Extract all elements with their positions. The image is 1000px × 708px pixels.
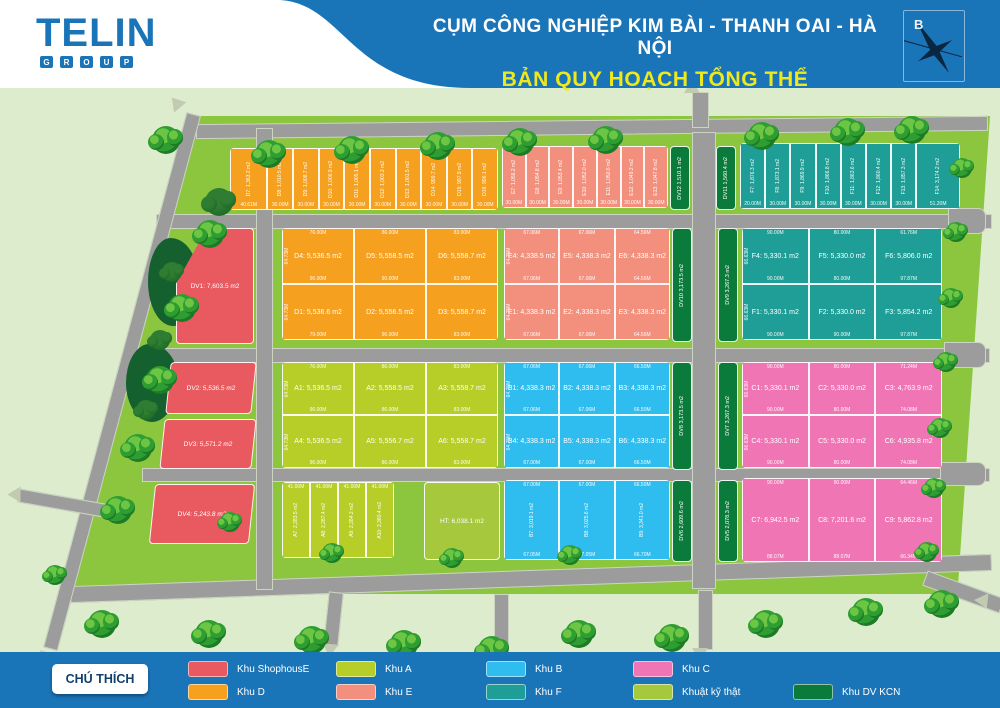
dimension-label: 67.06M: [505, 364, 558, 370]
tree-icon: [196, 220, 224, 248]
legend-label: Khu E: [385, 687, 412, 698]
road-arrow: [8, 487, 21, 503]
header-bar: TELIN GROUP CỤM CÔNG NGHIỆP KIM BÀI - TH…: [0, 0, 1000, 88]
plot-b6: B6: 4,338.3 m266.50M: [615, 415, 670, 468]
plot-a4: A4: 5,536.5 m296.00M64.73M: [282, 415, 354, 468]
tree-icon: [136, 400, 156, 420]
dimension-label: 30.00M: [766, 201, 789, 207]
dimension-label: 30.00M: [598, 200, 620, 206]
road-arrow: [166, 92, 187, 112]
plot-d9: D9: 1,008.7 m230.00M: [293, 148, 319, 210]
plot-d15: D15: 997.9 m230.00M: [447, 148, 473, 210]
dimension-label: 90.00M: [743, 364, 808, 370]
dimension-label: 97.87M: [876, 332, 941, 338]
dimension-label: 83.00M: [427, 407, 497, 413]
plot-label: C5: 5,330.0 m2: [818, 438, 866, 445]
legend-label: Khu F: [535, 687, 562, 698]
legend-item-khu-e: Khu E: [336, 683, 486, 701]
plot-a10: 41.00MA10: 2,380.4 m2: [366, 482, 394, 558]
dimension-label: 66.50M: [616, 482, 669, 488]
plot-d4: 76.00MD4: 5,536.5 m296.00M64.73M: [282, 228, 354, 284]
legend-label: Khu DV KCN: [842, 687, 900, 698]
dimension-label: 83.00M: [427, 276, 497, 282]
plot-b3: 66.50MB3: 4,338.3 m266.50M: [615, 362, 670, 415]
plot-c5: C5: 5,330.0 m280.00M: [809, 415, 876, 468]
plot-a3: 83.00MA3: 5,558.7 m283.00M: [426, 362, 498, 415]
legend-swatch: [793, 684, 833, 700]
tree-icon: [255, 140, 283, 168]
plot-label: E12: 1,049.2 m2: [629, 159, 635, 196]
plot-f2: F2: 5,330.0 m290.00M: [809, 284, 876, 340]
dimension-label: 66.50M: [616, 460, 669, 466]
tree-icon: [45, 565, 65, 585]
plot-label: B7: 3,019.1 m2: [529, 503, 535, 537]
plot-e1: E1: 4,338.3 m267.06M64.75M: [504, 284, 559, 340]
plot-label: A3: 5,558.7 m2: [438, 385, 485, 392]
plot-label: B5: 4,338.3 m2: [563, 438, 610, 445]
legend-swatch: [336, 661, 376, 677]
road-deadend-east3: [940, 462, 986, 486]
plot-e13: E13: 1,047.8 m230.00M: [644, 146, 668, 208]
dimension-label: 64.73M: [284, 304, 290, 321]
plot-label: B1: 4,338.3 m2: [508, 385, 555, 392]
plot-label: HT: 6,038.1 m2: [440, 518, 484, 525]
dimension-label: 66.63M: [744, 304, 750, 321]
logo-subtext: GROUP: [40, 56, 157, 68]
dimension-label: 30.00M: [892, 201, 915, 207]
road-row2: [156, 214, 992, 229]
dimension-label: 64.73M: [284, 248, 290, 265]
legend-label: Khuật kỹ thật: [682, 687, 740, 698]
plot-label: B4: 4,338.3 m2: [508, 438, 555, 445]
legend-row-2: Khu DKhu EKhu FKhuật kỹ thậtKhu DV KCN: [188, 683, 953, 701]
tree-icon: [506, 128, 534, 156]
dimension-label: 30.00M: [550, 200, 572, 206]
plot-label: C9: 5,862.8 m2: [885, 517, 933, 524]
tree-icon: [168, 294, 196, 322]
plot-d12: D12: 1,003.3 m230.00M: [370, 148, 396, 210]
tree-icon: [936, 352, 956, 372]
plot-label: DV8 3,173.5 m2: [679, 396, 685, 436]
plot-label: F9: 1,869.9 m2: [800, 159, 806, 193]
dimension-label: 76.00M: [283, 230, 353, 236]
title-line1: CỤM CÔNG NGHIỆP KIM BÀI - THANH OAI - HÀ…: [430, 16, 880, 60]
master-plan-poster: D7: 1,363.2 m240.61MD8: 1,010.5 m230.00M…: [0, 0, 1000, 708]
block-khu-a: 76.00MA1: 5,536.5 m296.00M64.73M86.00MA2…: [282, 362, 498, 468]
plot-label: DV5 2,078.3 m2: [725, 501, 731, 541]
tree-icon: [146, 366, 174, 394]
plot-label: A1: 5,536.5 m2: [294, 385, 341, 392]
plot-label: E1: 4,338.3 m2: [508, 309, 555, 316]
plot-label: DV9 3,267.3 m2: [725, 265, 731, 305]
dimension-label: 30.00M: [422, 202, 446, 208]
block-khu-e-north: E7: 1,056.2 m230.00ME8: 1,054.8 m230.00M…: [502, 146, 668, 208]
dimension-label: 67.06M: [560, 407, 613, 413]
plot-c4: C4: 5,330.1 m290.00M66.63M: [742, 415, 809, 468]
plot-label: DV7 3,267.3 m2: [725, 396, 731, 436]
plot-label: F13: 1,857.3 m2: [901, 158, 907, 194]
legend-swatch: [486, 661, 526, 677]
dimension-label: 66.50M: [616, 407, 669, 413]
plot-b2: 67.06MB2: 4,338.3 m267.06M: [559, 362, 614, 415]
road-row3: [148, 348, 990, 363]
plot-label: D2: 5,556.5 m2: [366, 309, 414, 316]
dimension-label: 74.08M: [876, 407, 941, 413]
plot-label: A8: 2,287.4 m2: [321, 503, 327, 537]
plot-label: C8: 7,201.6 m2: [818, 517, 866, 524]
plot-label: D1: 5,536.6 m2: [294, 309, 342, 316]
dimension-label: 90.00M: [355, 276, 425, 282]
plot-label: F4: 5,330.1 m2: [752, 253, 799, 260]
plot-label: D8: 1,010.5 m2: [277, 162, 283, 196]
plot-label: F2: 5,330.0 m2: [818, 309, 865, 316]
plot-label: F10: 1,866.8 m2: [825, 158, 831, 194]
dimension-label: 97.87M: [876, 276, 941, 282]
dimension-label: 90.00M: [810, 480, 875, 486]
legend-label: Khu C: [682, 664, 710, 675]
plot-dv2: DV2: 5,536.5 m2: [165, 362, 256, 414]
plot-f9: F9: 1,869.9 m230.00M: [790, 143, 815, 209]
plot-f1: F1: 5,330.1 m290.00M66.63M: [742, 284, 809, 340]
dimension-label: 83.00M: [427, 332, 497, 338]
legend-swatch: [486, 684, 526, 700]
plot-e6: 64.56ME6: 4,338.3 m264.56M: [615, 228, 670, 284]
plot-label: E3: 4,338.3 m2: [619, 309, 666, 316]
plot-e11: E11: 1,050.6 m230.00M: [597, 146, 621, 208]
plot-label: DV1: 7,603.5 m2: [191, 283, 240, 290]
title-line2: BẢN QUY HOẠCH TỔNG THỂ: [430, 68, 880, 92]
dimension-label: 64.75M: [506, 304, 512, 321]
plot-label: B8: 3,025.6 m2: [584, 503, 590, 537]
tree-icon: [928, 590, 956, 618]
plot-label: DV2: 5,536.5 m2: [186, 385, 236, 392]
plot-label: A7: 2,283.5 m2: [293, 503, 299, 537]
plot-f3: F3: 5,854.2 m297.87M: [875, 284, 942, 340]
poster-titles: CỤM CÔNG NGHIỆP KIM BÀI - THANH OAI - HÀ…: [430, 16, 880, 92]
legend-item-shophouse: Khu ShophousE: [188, 660, 336, 678]
dimension-label: 90.00M: [743, 407, 808, 413]
logo-sub-letter: P: [120, 56, 133, 68]
dimension-label: 66.63M: [744, 248, 750, 265]
plot-d16: D16: 996.1 m230.00M: [472, 148, 498, 210]
dimension-label: 30.00M: [345, 202, 369, 208]
plot-label: F3: 5,854.2 m2: [885, 309, 932, 316]
plot-dv5: DV5 2,078.3 m2: [718, 480, 738, 562]
dimension-label: 30.00M: [574, 200, 596, 206]
tree-icon: [442, 548, 462, 568]
legend-item-dv-kcn: Khu DV KCN: [793, 683, 953, 701]
dimension-label: 64.56M: [616, 276, 669, 282]
dimension-label: 79.00M: [283, 332, 353, 338]
plot-label: E8: 1,054.8 m2: [535, 160, 541, 194]
dimension-label: 88.07M: [743, 554, 808, 560]
plot-label: D14: 999.7 m2: [431, 163, 437, 196]
plot-label: C2: 5,330.0 m2: [818, 385, 866, 392]
legend-row-1: Khu ShophousEKhu AKhu BKhu C: [188, 660, 953, 678]
tree-icon: [930, 418, 950, 438]
tree-icon: [88, 610, 116, 638]
dimension-label: 30.00M: [473, 202, 497, 208]
dimension-label: 30.00M: [622, 200, 644, 206]
dimension-label: 66.70M: [616, 552, 669, 558]
plot-c1: 90.00MC1: 5,330.1 m290.00M66.63M: [742, 362, 809, 415]
logo-text: TELIN: [36, 12, 157, 54]
plot-e8: E8: 1,054.8 m230.00M: [526, 146, 550, 208]
legend-label: Khu D: [237, 687, 265, 698]
block-khu-d: 76.00MD4: 5,536.5 m296.00M64.73M86.00MD5…: [282, 228, 498, 340]
dimension-label: 64.75M: [506, 248, 512, 265]
plot-f5: 80.00MF5: 5,330.0 m280.00M: [809, 228, 876, 284]
plot-label: D9: 1,008.7 m2: [303, 162, 309, 196]
dimension-label: 67.06M: [560, 276, 613, 282]
dimension-label: 51.20M: [917, 201, 959, 207]
plot-e9: E9: 1,053.4 m230.00M: [549, 146, 573, 208]
plot-label: F12: 1,860.4 m2: [876, 158, 882, 194]
plot-e4: 67.06ME4: 4,338.5 m267.06M64.75M: [504, 228, 559, 284]
tree-icon: [924, 478, 944, 498]
plot-label: D16: 996.1 m2: [482, 163, 488, 196]
tree-icon: [834, 118, 862, 146]
plot-dv8: DV8 3,173.5 m2: [672, 362, 692, 470]
dimension-label: 67.06M: [505, 407, 558, 413]
dimension-label: 96.00M: [283, 276, 353, 282]
map-canvas: D7: 1,363.2 m240.61MD8: 1,010.5 m230.00M…: [0, 0, 1000, 708]
block-khu-e: 67.06ME4: 4,338.5 m267.06M64.75M67.06ME5…: [504, 228, 670, 340]
plot-label: B2: 4,338.3 m2: [563, 385, 610, 392]
plot-b9: 66.50MB9: 3,341.0 m266.70M: [615, 480, 670, 560]
plot-dv10: DV10 3,173.5 m2: [672, 228, 692, 342]
dimension-label: 30.00M: [645, 200, 667, 206]
plot-e2: E2: 4,338.3 m267.06M: [559, 284, 614, 340]
dimension-label: 40.61M: [231, 202, 266, 208]
dimension-label: 90.00M: [743, 332, 808, 338]
legend-label: Khu A: [385, 664, 412, 675]
plot-e3: E3: 4,338.3 m264.56M: [615, 284, 670, 340]
tree-icon: [748, 122, 776, 150]
legend-swatch: [188, 661, 228, 677]
plot-dv7: DV7 3,267.3 m2: [718, 362, 738, 470]
tree-icon: [162, 262, 182, 282]
plot-label: E4: 4,338.5 m2: [508, 253, 555, 260]
road-vertical-east: [692, 132, 716, 589]
tree-icon: [150, 330, 170, 350]
dimension-label: 90.00M: [810, 332, 875, 338]
legend-label: Khu B: [535, 664, 562, 675]
dimension-label: 96.00M: [355, 332, 425, 338]
telin-logo: TELIN GROUP: [36, 12, 157, 68]
tree-icon: [952, 158, 972, 178]
dimension-label: 30.00M: [867, 201, 890, 207]
dimension-label: 41.00M: [311, 484, 337, 490]
legend-title: CHÚ THÍCH: [52, 664, 148, 694]
dimension-label: 41.00M: [283, 484, 309, 490]
plot-label: F5: 5,330.0 m2: [818, 253, 865, 260]
dimension-label: 80.00M: [810, 276, 875, 282]
plot-label: A6: 5,558.7 m2: [438, 438, 485, 445]
plot-label: A4: 5,536.5 m2: [294, 438, 341, 445]
plot-label: F11: 1,863.6 m2: [850, 158, 856, 194]
dimension-label: 86.00M: [355, 230, 425, 236]
plot-label: F1: 5,330.1 m2: [752, 309, 799, 316]
dimension-label: 90.00M: [743, 480, 808, 486]
plot-f7: F7: 1,876.3 m220.00M: [740, 143, 765, 209]
plot-dv9: DV9 3,267.3 m2: [718, 228, 738, 342]
dimension-label: 67.06M: [505, 276, 558, 282]
dimension-label: 80.00M: [810, 460, 875, 466]
block-khu-c: 90.00MC1: 5,330.1 m290.00M66.63M80.00MC2…: [742, 362, 942, 468]
dimension-label: 67.00M: [505, 460, 558, 466]
plot-label: E11: 1,050.6 m2: [606, 159, 612, 195]
plot-label: D3: 5,558.7 m2: [438, 309, 486, 316]
logo-sub-letter: U: [100, 56, 113, 68]
plot-label: C7: 6,942.5 m2: [751, 517, 799, 524]
plot-d3: D3: 5,558.7 m283.00M: [426, 284, 498, 340]
plot-label: F14: 3,174.2 m2: [935, 158, 941, 194]
plot-label: A10: 2,380.4 m2: [377, 502, 383, 539]
dimension-label: 30.00M: [817, 201, 840, 207]
block-khu-c-south: 90.00MC7: 6,942.5 m288.07M90.00MC8: 7,20…: [742, 478, 942, 562]
tree-icon: [338, 136, 366, 164]
road-top-stub: [692, 92, 709, 128]
plot-label: D7: 1,363.2 m2: [246, 162, 252, 196]
dimension-label: 67.06M: [560, 332, 613, 338]
legend-item-khu-f: Khu F: [486, 683, 633, 701]
dimension-label: 67.00M: [560, 460, 613, 466]
dimension-label: 30.00M: [397, 202, 421, 208]
dimension-label: 86.00M: [355, 460, 425, 466]
plot-label: E5: 4,338.3 m2: [563, 253, 610, 260]
dimension-label: 80.00M: [810, 230, 875, 236]
plot-f6: 61.76MF6: 5,806.0 m297.87M: [875, 228, 942, 284]
plot-d1: D1: 5,536.6 m279.00M64.73M: [282, 284, 354, 340]
block-khu-f-north: F7: 1,876.3 m220.00MF8: 1,873.1 m230.00M…: [740, 143, 960, 209]
dimension-label: 64.75M: [506, 433, 512, 450]
dimension-label: 30.00M: [527, 200, 549, 206]
plot-a6: A6: 5,558.7 m283.00M: [426, 415, 498, 468]
plot-e10: E10: 1,052.0 m230.00M: [573, 146, 597, 208]
dimension-label: 88.07M: [810, 554, 875, 560]
dimension-label: 66.50M: [616, 364, 669, 370]
legend-bar: CHÚ THÍCH Khu ShophousEKhu AKhu BKhu C K…: [0, 652, 1000, 708]
plot-label: DV12 1,510.1 m2: [677, 157, 683, 200]
plot-f14: F14: 3,174.2 m251.20M: [916, 143, 960, 209]
plot-label: D10: 1,006.9 m2: [328, 161, 334, 198]
dimension-label: 67.06M: [505, 230, 558, 236]
plot-label: DV6 2,609.6 m2: [679, 501, 685, 541]
dimension-label: 30.00M: [448, 202, 472, 208]
plot-label: DV3: 5,571.2 m2: [183, 441, 233, 448]
dimension-label: 30.00M: [268, 202, 292, 208]
dimension-label: 86.00M: [355, 364, 425, 370]
block-khu-b: 67.06MB1: 4,338.3 m267.06M64.75M67.06MB2…: [504, 362, 670, 468]
plot-label: B6: 4,338.3 m2: [619, 438, 666, 445]
tree-icon: [220, 512, 240, 532]
plot-label: D5: 5,558.5 m2: [366, 253, 414, 260]
legend-item-ky-thuat: Khuật kỹ thật: [633, 683, 793, 701]
plot-a7: 41.00MA7: 2,283.5 m2: [282, 482, 310, 558]
dimension-label: 41.00M: [367, 484, 393, 490]
plot-label: B3: 4,338.3 m2: [619, 385, 666, 392]
dimension-label: 20.00M: [741, 201, 764, 207]
plot-label: E13: 1,047.8 m2: [653, 159, 659, 196]
plot-f12: F12: 1,860.4 m230.00M: [866, 143, 891, 209]
plot-dv12: DV12 1,510.1 m2: [670, 146, 690, 210]
tree-icon: [658, 624, 686, 652]
dimension-label: 83.00M: [427, 364, 497, 370]
dimension-label: 90.00M: [743, 230, 808, 236]
block-khu-b-south: 67.00MB7: 3,019.1 m267.05M67.00MB8: 3,02…: [504, 480, 670, 560]
dimension-label: 30.00M: [320, 202, 344, 208]
plot-label: A2: 5,558.5 m2: [366, 385, 413, 392]
plot-f4: 90.00MF4: 5,330.1 m290.00M66.63M: [742, 228, 809, 284]
dimension-label: 66.63M: [744, 433, 750, 450]
road-stub-south3: [698, 590, 713, 650]
plot-label: B9: 3,341.0 m2: [639, 503, 645, 537]
plot-label: D4: 5,536.5 m2: [294, 253, 342, 260]
dimension-label: 90.00M: [743, 276, 808, 282]
plot-label: D12: 1,003.3 m2: [380, 161, 386, 198]
legend-label: Khu ShophousE: [237, 664, 309, 675]
tree-icon: [917, 542, 937, 562]
dimension-label: 67.06M: [560, 364, 613, 370]
dimension-label: 30.00M: [842, 201, 865, 207]
plot-b4: B4: 4,338.3 m267.00M64.75M: [504, 415, 559, 468]
dimension-label: 67.00M: [505, 482, 558, 488]
plot-e12: E12: 1,049.2 m230.00M: [621, 146, 645, 208]
plot-c3: 71.24MC3: 4,763.9 m274.08M: [875, 362, 942, 415]
legend-swatch: [336, 684, 376, 700]
dimension-label: 30.00M: [503, 200, 525, 206]
tree-icon: [124, 434, 152, 462]
plot-label: DV11 1,560.4 m2: [723, 157, 729, 199]
dimension-label: 74.08M: [876, 460, 941, 466]
plot-label: F7: 1,876.3 m2: [750, 159, 756, 193]
dimension-label: 67.06M: [505, 332, 558, 338]
dimension-label: 30.00M: [371, 202, 395, 208]
tree-icon: [298, 626, 326, 654]
dimension-label: 71.24M: [876, 364, 941, 370]
tree-icon: [565, 620, 593, 648]
plot-label: C6: 4,935.8 m2: [885, 438, 933, 445]
plot-a1: 76.00MA1: 5,536.5 m296.00M64.73M: [282, 362, 354, 415]
plot-f8: F8: 1,873.1 m230.00M: [765, 143, 790, 209]
plot-b1: 67.06MB1: 4,338.3 m267.06M64.75M: [504, 362, 559, 415]
legend-item-khu-c: Khu C: [633, 660, 793, 678]
dimension-label: 64.75M: [506, 380, 512, 397]
plot-c2: 80.00MC2: 5,330.0 m280.00M: [809, 362, 876, 415]
plot-label: E10: 1,052.0 m2: [582, 159, 588, 196]
plot-dv11: DV11 1,560.4 m2: [716, 146, 736, 210]
plot-f11: F11: 1,863.6 m230.00M: [841, 143, 866, 209]
plot-label: A5: 5,556.7 m2: [366, 438, 413, 445]
plot-b5: B5: 4,338.3 m267.00M: [559, 415, 614, 468]
tree-icon: [104, 496, 132, 524]
plot-b7: 67.00MB7: 3,019.1 m267.05M: [504, 480, 559, 560]
dimension-label: 90.00M: [743, 460, 808, 466]
legend-item-khu-a: Khu A: [336, 660, 486, 678]
dimension-label: 67.06M: [560, 230, 613, 236]
dimension-label: 64.73M: [284, 380, 290, 397]
dimension-label: 80.00M: [810, 407, 875, 413]
tree-icon: [560, 545, 580, 565]
tree-icon: [941, 288, 961, 308]
logo-sub-letter: O: [80, 56, 93, 68]
tree-icon: [195, 620, 223, 648]
logo-sub-letter: R: [60, 56, 73, 68]
plot-e5: 67.06ME5: 4,338.3 m267.06M: [559, 228, 614, 284]
compass-needle-icon: [904, 11, 962, 79]
plot-label: D11: 1,005.1 m2: [354, 161, 360, 198]
